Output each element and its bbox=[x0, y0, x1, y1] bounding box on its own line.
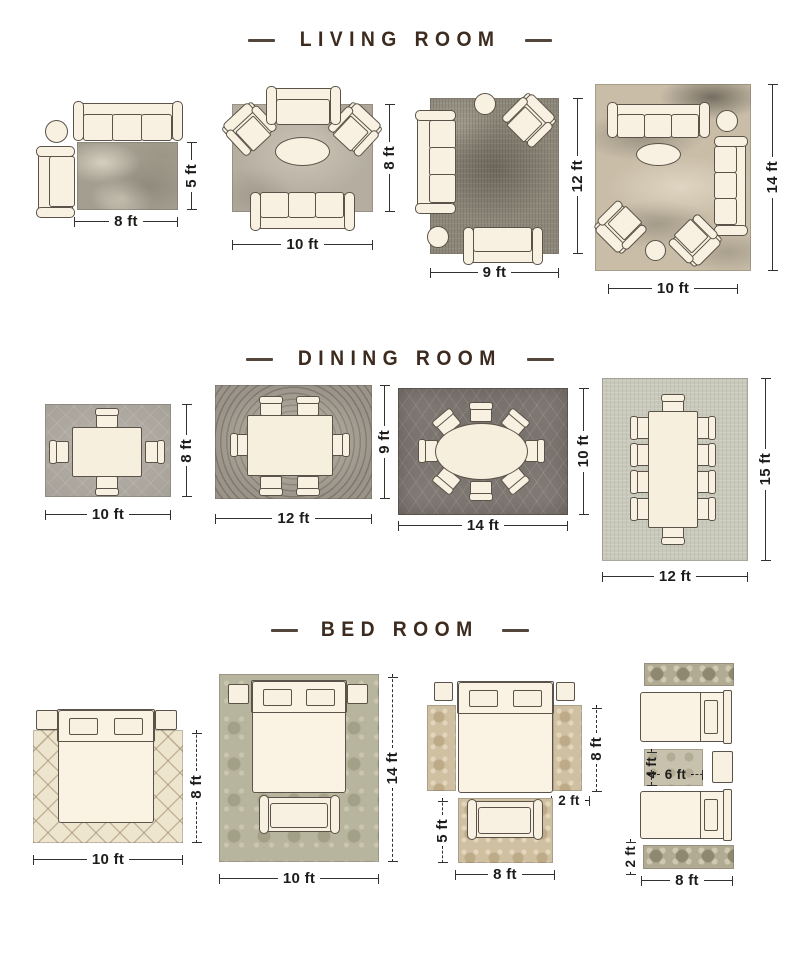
dim-width: 14 ft bbox=[398, 517, 568, 533]
ottoman bbox=[645, 240, 666, 261]
title-dash-left bbox=[271, 629, 298, 632]
dim-rug-height: 5 ft bbox=[434, 798, 451, 863]
side-table bbox=[474, 93, 496, 115]
dining-table bbox=[247, 415, 333, 476]
dim-width: 10 ft bbox=[608, 280, 738, 296]
section-title-dining-room: DINING ROOM bbox=[0, 347, 800, 371]
dining-chair bbox=[470, 481, 492, 497]
dim-width: 10 ft bbox=[33, 851, 183, 867]
dim-accent-width: 6 ft bbox=[648, 766, 703, 782]
rug-living-8x5 bbox=[77, 142, 178, 210]
dim-width: 9 ft bbox=[430, 264, 559, 280]
loveseat bbox=[267, 88, 339, 123]
dining-chair bbox=[96, 476, 118, 492]
title-dash-right bbox=[525, 39, 552, 42]
dim-width: 12 ft bbox=[602, 568, 748, 584]
rug-size-guide-infographic: LIVING ROOM 5 ft 8 ft 8 ft 10 ft 12 ft 9… bbox=[0, 0, 800, 978]
section-title-living-room: LIVING ROOM bbox=[0, 28, 800, 52]
runner-rug-right bbox=[553, 705, 582, 791]
coffee-table bbox=[636, 143, 681, 166]
title-dash-left bbox=[248, 39, 275, 42]
ottoman bbox=[427, 226, 449, 248]
dining-table bbox=[72, 427, 142, 477]
dining-chair bbox=[260, 400, 282, 416]
dining-chair bbox=[470, 406, 492, 422]
dim-height: 5 ft bbox=[183, 142, 200, 210]
dim-height: 14 ft bbox=[764, 84, 781, 271]
title-dash-left bbox=[246, 358, 273, 361]
dim-width: 12 ft bbox=[215, 510, 372, 526]
side-table bbox=[716, 110, 738, 132]
dim-width: 10 ft bbox=[232, 236, 373, 252]
sofa bbox=[608, 104, 708, 136]
bed bbox=[58, 710, 154, 823]
runner-rug-top bbox=[644, 663, 734, 686]
runner-rug-bottom bbox=[643, 845, 734, 869]
dining-chair bbox=[696, 471, 712, 493]
bed bbox=[252, 681, 346, 793]
dim-height: 9 ft bbox=[376, 385, 393, 499]
nightstand bbox=[556, 682, 575, 701]
bench bbox=[260, 797, 338, 832]
dim-runner-width: 8 ft bbox=[641, 872, 733, 888]
dining-chair bbox=[297, 476, 319, 492]
dim-height: 12 ft bbox=[569, 98, 586, 254]
title-dash-right bbox=[527, 358, 554, 361]
nightstand bbox=[155, 710, 177, 730]
dining-chair bbox=[96, 412, 118, 428]
dim-width: 8 ft bbox=[74, 213, 178, 229]
dim-height: 8 ft bbox=[188, 730, 205, 843]
loveseat bbox=[38, 147, 73, 216]
coffee-table bbox=[275, 137, 330, 166]
nightstand bbox=[347, 684, 368, 704]
sofa bbox=[251, 194, 353, 229]
nightstand bbox=[228, 684, 249, 704]
dining-chair bbox=[297, 400, 319, 416]
section-title-bed-room: BED ROOM bbox=[0, 618, 800, 642]
dim-height: 8 ft bbox=[381, 104, 398, 212]
nightstand bbox=[434, 682, 453, 701]
dim-height: 10 ft bbox=[575, 388, 592, 515]
dim-bed-height: 8 ft bbox=[588, 705, 605, 792]
sofa bbox=[417, 111, 454, 212]
dining-chair bbox=[696, 498, 712, 520]
dining-table bbox=[648, 411, 698, 528]
sofa bbox=[716, 137, 746, 234]
dim-rug-width: 8 ft bbox=[455, 866, 555, 882]
twin-bed bbox=[640, 692, 731, 742]
side-table bbox=[45, 120, 68, 143]
nightstand bbox=[712, 751, 733, 783]
dim-height: 15 ft bbox=[757, 378, 774, 561]
runner-rug-left bbox=[427, 705, 456, 791]
dining-chair bbox=[53, 441, 69, 463]
twin-bed bbox=[640, 791, 731, 839]
dim-width: 10 ft bbox=[45, 506, 171, 522]
sofa bbox=[74, 103, 181, 139]
nightstand bbox=[36, 710, 58, 730]
bed bbox=[458, 682, 553, 793]
title-dash-right bbox=[502, 629, 529, 632]
section-heading: LIVING ROOM bbox=[300, 28, 501, 52]
bench bbox=[468, 801, 541, 838]
dining-chair bbox=[145, 441, 161, 463]
loveseat bbox=[464, 229, 541, 263]
section-heading: BED ROOM bbox=[321, 618, 479, 642]
dim-width: 10 ft bbox=[219, 870, 379, 886]
dining-chair bbox=[696, 444, 712, 466]
dim-runner-width: 2 ft bbox=[548, 792, 590, 808]
dim-height: 8 ft bbox=[178, 404, 195, 497]
dining-chair bbox=[696, 417, 712, 439]
oval-dining-table bbox=[435, 423, 528, 480]
dim-height: 14 ft bbox=[384, 674, 401, 862]
dim-runner-height: 2 ft bbox=[622, 839, 639, 875]
section-heading: DINING ROOM bbox=[298, 347, 502, 371]
dining-chair bbox=[260, 476, 282, 492]
